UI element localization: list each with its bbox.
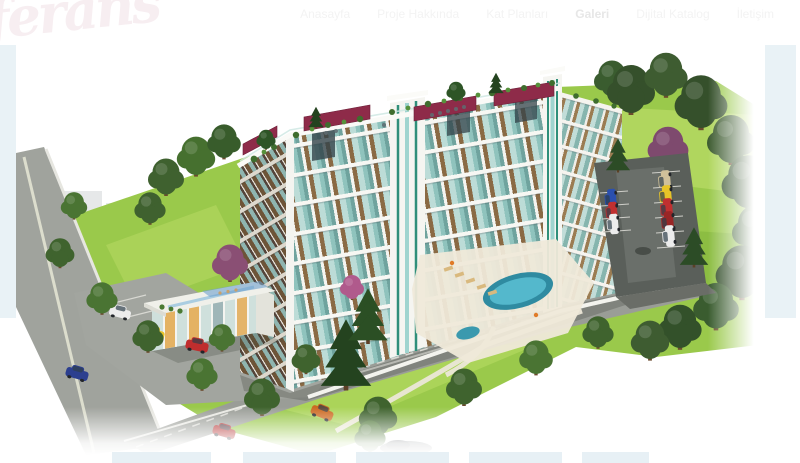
page: ferans Anasayfa Proje Hakkında Kat Planl… <box>0 0 800 463</box>
brand-logo[interactable]: ferans <box>0 0 161 47</box>
nav-item-anasayfa[interactable]: Anasayfa <box>300 7 350 21</box>
bottom-fade <box>16 407 765 455</box>
gallery-thumbnail[interactable] <box>582 452 649 463</box>
main-nav: Anasayfa Proje Hakkında Kat Planları Gal… <box>300 7 774 21</box>
gallery-thumbnail[interactable] <box>356 452 449 463</box>
right-fade <box>708 45 765 455</box>
nav-item-galeri[interactable]: Galeri <box>575 7 609 21</box>
gallery-thumbnail[interactable] <box>469 452 562 463</box>
project-render-image[interactable] <box>16 45 765 455</box>
gallery-thumbnail[interactable] <box>112 452 211 463</box>
nav-item-iletisim[interactable]: İletişim <box>737 7 774 21</box>
gallery-thumbnail[interactable] <box>243 452 336 463</box>
header: ferans Anasayfa Proje Hakkında Kat Planl… <box>0 0 800 45</box>
nav-item-kat-planlari[interactable]: Kat Planları <box>486 7 548 21</box>
nav-item-proje-hakkinda[interactable]: Proje Hakkında <box>377 7 459 21</box>
nav-item-dijital-katalog[interactable]: Dijital Katalog <box>636 7 709 21</box>
